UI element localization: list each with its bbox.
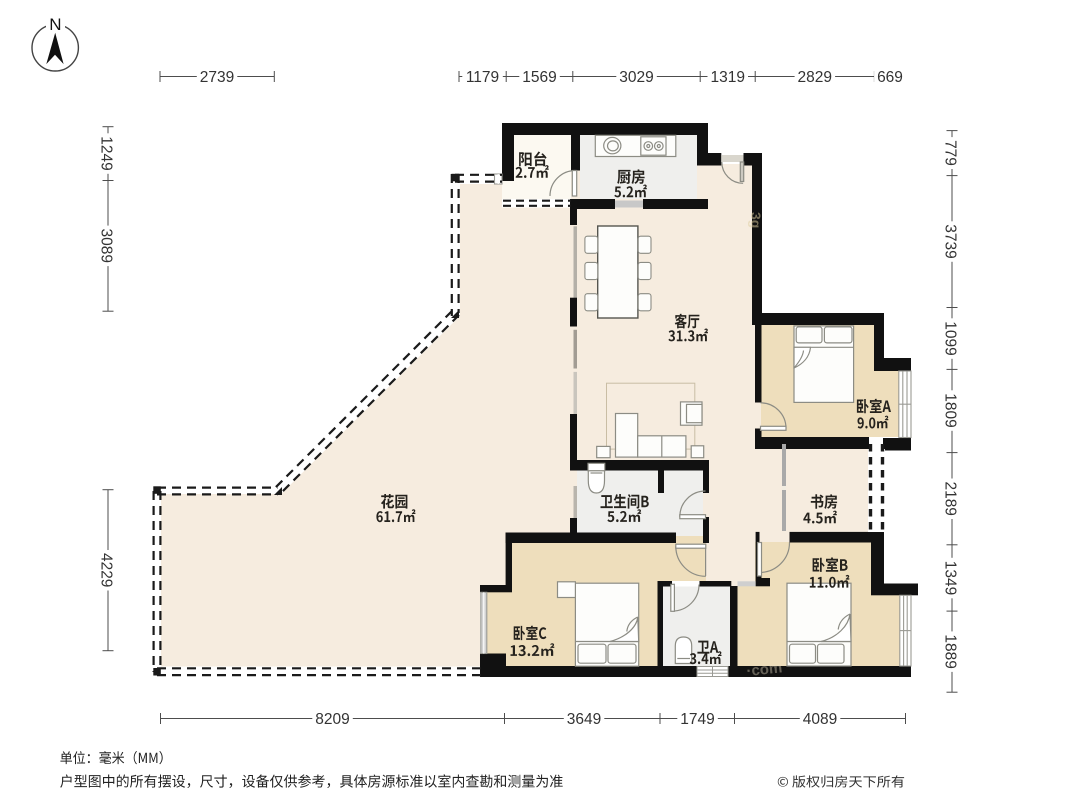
svg-text:779: 779	[942, 140, 959, 166]
svg-text:3089: 3089	[98, 229, 115, 263]
svg-text:2739: 2739	[200, 69, 234, 86]
svg-text:4229: 4229	[98, 553, 115, 587]
svg-text:3649: 3649	[567, 711, 601, 728]
svg-text:1889: 1889	[942, 634, 959, 668]
svg-text:4089: 4089	[803, 711, 837, 728]
svg-text:1809: 1809	[942, 393, 959, 427]
svg-text:1749: 1749	[680, 711, 714, 728]
svg-text:3029: 3029	[619, 69, 653, 86]
svg-text:8209: 8209	[315, 711, 349, 728]
svg-text:1179: 1179	[466, 69, 499, 86]
svg-text:1319: 1319	[710, 69, 744, 86]
svg-text:669: 669	[877, 69, 903, 86]
svg-text:3739: 3739	[942, 224, 959, 258]
svg-text:1569: 1569	[522, 69, 556, 86]
svg-text:1349: 1349	[942, 561, 959, 595]
svg-text:2829: 2829	[798, 69, 832, 86]
svg-text:2189: 2189	[942, 481, 959, 515]
svg-text:N: N	[49, 15, 61, 34]
svg-text:1099: 1099	[942, 321, 959, 355]
svg-text:3g: 3g	[748, 212, 764, 228]
svg-text:1249: 1249	[98, 136, 115, 170]
